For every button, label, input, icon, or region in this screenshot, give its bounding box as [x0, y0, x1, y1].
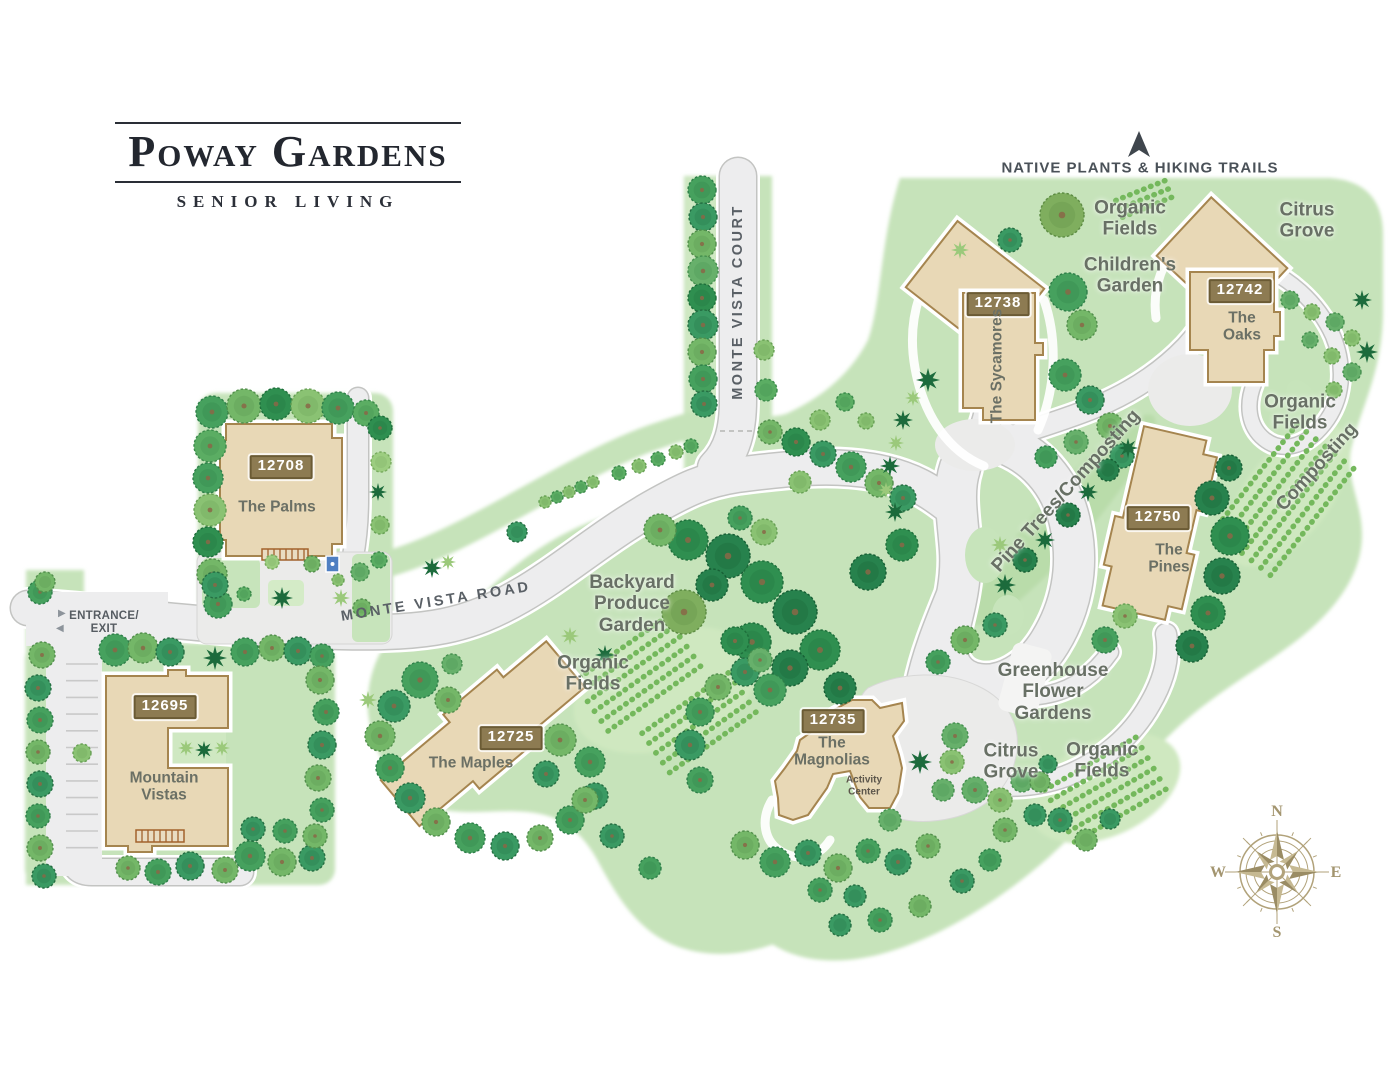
tree-icon — [979, 849, 1001, 871]
tree-icon — [639, 857, 661, 879]
tree-icon — [773, 590, 817, 634]
tree-icon — [194, 430, 226, 462]
area-label-childrens-garden: Children's Garden — [1070, 255, 1190, 298]
tree-icon — [687, 767, 713, 793]
tree-icon — [26, 804, 50, 828]
tree-icon — [156, 638, 184, 666]
tree-icon — [212, 857, 238, 883]
entrance-exit-label: ENTRANCE/ EXIT — [57, 610, 152, 636]
tree-icon — [1281, 291, 1299, 309]
tree-icon — [741, 561, 783, 603]
name-magnolias: The Magnolias — [782, 735, 882, 770]
tree-icon — [35, 572, 55, 592]
area-label-greenhouse-flower-gardens: Greenhouse Flower Gardens — [990, 660, 1116, 724]
badge-magnolias: 12735 — [802, 709, 865, 733]
tree-icon — [1075, 829, 1097, 851]
name-mountain-vistas: Mountain Vistas — [119, 770, 209, 805]
palm-tree-icon — [888, 435, 904, 451]
name-palms: The Palms — [222, 498, 332, 515]
arrow-left-icon: ◀ — [56, 623, 64, 634]
tree-icon — [539, 496, 551, 508]
tree-icon — [563, 486, 575, 498]
palm-tree-icon — [994, 574, 1016, 596]
tree-icon — [99, 634, 131, 666]
tree-icon — [365, 721, 395, 751]
tree-icon — [196, 396, 228, 428]
tree-icon — [1064, 430, 1088, 454]
area-label-organic-fields-right: Organic Fields — [1255, 392, 1345, 435]
palm-tree-icon — [203, 646, 227, 670]
tree-icon — [73, 744, 91, 762]
tree-icon — [858, 413, 874, 429]
tree-icon — [688, 284, 716, 312]
tree-icon — [836, 393, 854, 411]
tree-icon — [1113, 604, 1137, 628]
tree-icon — [235, 841, 265, 871]
tree-icon — [1326, 313, 1344, 331]
tree-icon — [696, 569, 728, 601]
tree-icon — [600, 824, 624, 848]
tree-icon — [684, 439, 698, 453]
site-map: Poway Gardens SENIOR LIVING NATIVE PLANT… — [0, 0, 1400, 1082]
area-label-organic-fields-center: Organic Fields — [549, 653, 637, 696]
tree-icon — [455, 823, 485, 853]
palm-tree-icon — [369, 483, 387, 501]
tree-icon — [755, 379, 777, 401]
tree-icon — [299, 845, 325, 871]
tree-icon — [795, 840, 821, 866]
tree-icon — [1048, 808, 1072, 832]
tree-icon — [1211, 517, 1249, 555]
tree-icon — [748, 648, 772, 672]
tree-icon — [322, 392, 354, 424]
tree-icon — [1191, 596, 1225, 630]
compass-w-label: W — [1210, 864, 1226, 882]
palm-tree-icon — [359, 691, 377, 709]
tree-icon — [689, 365, 717, 393]
palm-tree-icon — [878, 482, 894, 498]
tree-icon — [533, 761, 559, 787]
tree-icon — [916, 834, 940, 858]
tree-icon — [886, 529, 918, 561]
bench-icon — [136, 830, 184, 842]
tree-icon — [688, 310, 718, 340]
tree-icon — [1343, 363, 1361, 381]
tree-icon — [260, 388, 292, 420]
tree-icon — [551, 491, 563, 503]
compass-e-label: E — [1331, 864, 1342, 882]
tree-icon — [265, 555, 279, 569]
tree-icon — [575, 481, 587, 493]
tree-icon — [422, 808, 450, 836]
tree-icon — [27, 835, 53, 861]
tree-icon — [371, 552, 387, 568]
tree-icon — [378, 690, 410, 722]
area-label-organic-fields-top: Organic Fields — [1085, 198, 1175, 241]
palm-tree-icon — [332, 589, 350, 607]
tree-icon — [868, 908, 892, 932]
palm-tree-icon — [422, 558, 442, 578]
tree-icon — [308, 731, 336, 759]
compass-s-label: S — [1273, 924, 1282, 942]
logo: Poway Gardens SENIOR LIVING — [85, 122, 491, 212]
north-arrow-icon — [1128, 131, 1150, 157]
tree-icon — [26, 740, 50, 764]
tree-icon — [1035, 446, 1057, 468]
palm-tree-icon — [271, 587, 293, 609]
tree-icon — [691, 391, 717, 417]
logo-rule-bottom — [115, 181, 461, 183]
tree-icon — [491, 832, 519, 860]
tree-icon — [402, 662, 438, 698]
palm-tree-icon — [214, 740, 230, 756]
tree-icon — [998, 228, 1022, 252]
label-activity-center: Activity Center — [832, 775, 896, 798]
tree-icon — [844, 885, 866, 907]
area-label-backyard-produce-garden: Backyard Produce Garden — [573, 572, 691, 636]
tree-icon — [988, 788, 1012, 812]
tree-icon — [368, 416, 392, 440]
badge-pines: 12750 — [1127, 506, 1190, 530]
area-label-organic-fields-bottom: Organic Fields — [1057, 740, 1147, 783]
tree-icon — [1067, 310, 1097, 340]
tree-icon — [612, 466, 626, 480]
tree-icon — [829, 914, 851, 936]
tree-icon — [675, 730, 705, 760]
tree-icon — [371, 516, 389, 534]
compass-rose — [1225, 820, 1329, 924]
tree-icon — [1092, 627, 1118, 653]
palm-tree-icon — [880, 456, 900, 476]
trail-label: NATIVE PLANTS & HIKING TRAILS — [1001, 161, 1278, 178]
tree-icon — [728, 506, 752, 530]
tree-icon — [810, 410, 830, 430]
tree-icon — [259, 635, 285, 661]
tree-icon — [754, 340, 774, 360]
logo-subtitle: SENIOR LIVING — [85, 192, 491, 212]
tree-icon — [1040, 193, 1084, 237]
name-sycamores: The Sycamores — [988, 309, 1005, 424]
tree-icon — [1304, 304, 1320, 320]
tree-icon — [435, 687, 461, 713]
tree-icon — [313, 699, 339, 725]
tree-icon — [940, 750, 964, 774]
tree-icon — [824, 854, 852, 882]
area-label-citrus-grove-bottom: Citrus Grove — [975, 741, 1047, 784]
tree-icon — [1195, 481, 1229, 515]
tree-icon — [310, 644, 334, 668]
tree-icon — [371, 452, 391, 472]
tree-icon — [993, 818, 1017, 842]
tree-icon — [951, 626, 979, 654]
tree-icon — [527, 825, 553, 851]
tree-icon — [227, 389, 261, 423]
badge-mountain-vistas: 12695 — [134, 695, 197, 719]
tree-icon — [376, 754, 404, 782]
road-label-monte-vista-court: MONTE VISTA COURT — [730, 204, 746, 400]
palm-tree-icon — [905, 390, 921, 406]
tree-icon — [202, 572, 228, 598]
tree-icon — [721, 627, 749, 655]
tree-icon — [303, 824, 327, 848]
tree-icon — [782, 428, 810, 456]
tree-icon — [909, 895, 931, 917]
tree-icon — [879, 809, 901, 831]
tree-icon — [669, 445, 683, 459]
tree-icon — [688, 230, 716, 258]
tree-icon — [689, 203, 717, 231]
badge-oaks: 12742 — [1209, 279, 1272, 303]
tree-icon — [273, 819, 297, 843]
tree-icon — [1216, 455, 1242, 481]
tree-icon — [25, 675, 51, 701]
palm-tree-icon — [893, 410, 913, 430]
tree-icon — [983, 613, 1007, 637]
tree-icon — [810, 441, 836, 467]
tree-icon — [237, 587, 251, 601]
tree-icon — [587, 476, 599, 488]
palm-tree-icon — [885, 502, 905, 522]
palm-tree-icon — [1352, 290, 1372, 310]
palm-tree-icon — [195, 741, 213, 759]
tree-icon — [544, 724, 576, 756]
compass-n-label: N — [1271, 803, 1283, 821]
tree-icon — [193, 463, 223, 493]
tree-icon — [632, 459, 646, 473]
tree-icon — [705, 674, 731, 700]
tree-icon — [32, 864, 56, 888]
tree-icon — [27, 707, 53, 733]
tree-icon — [686, 698, 714, 726]
tree-icon — [351, 563, 369, 581]
tree-icon — [760, 847, 790, 877]
tree-icon — [1024, 804, 1046, 826]
tree-icon — [1076, 386, 1104, 414]
tree-icon — [332, 574, 344, 586]
tree-icon — [116, 856, 140, 880]
tree-icon — [395, 783, 425, 813]
tree-icon — [284, 637, 312, 665]
tree-icon — [688, 176, 716, 204]
tree-icon — [575, 747, 605, 777]
tree-icon — [1100, 809, 1120, 829]
tree-icon — [291, 389, 325, 423]
tree-icon — [268, 848, 296, 876]
tree-icon — [1204, 558, 1240, 594]
building-the-palms — [220, 424, 342, 556]
tree-icon — [241, 817, 265, 841]
tree-icon — [836, 452, 866, 482]
tree-icon — [731, 831, 759, 859]
tree-icon — [1302, 332, 1318, 348]
tree-icon — [885, 849, 911, 875]
tree-icon — [1176, 630, 1208, 662]
tree-icon — [789, 471, 811, 493]
tree-icon — [688, 338, 716, 366]
tree-icon — [644, 514, 676, 546]
palm-tree-icon — [951, 241, 969, 259]
tree-icon — [850, 554, 886, 590]
badge-maples: 12725 — [480, 726, 543, 750]
palm-tree-icon — [1356, 341, 1378, 363]
tree-icon — [651, 452, 665, 466]
tree-icon — [304, 556, 320, 572]
tree-icon — [926, 650, 950, 674]
name-oaks: The Oaks — [1217, 310, 1267, 345]
tree-icon — [572, 787, 598, 813]
tree-icon — [29, 642, 55, 668]
arrow-right-icon: ▶ — [58, 608, 66, 619]
name-maples: The Maples — [429, 754, 513, 771]
tree-icon — [751, 519, 777, 545]
tree-icon — [856, 839, 880, 863]
tree-icon — [305, 765, 331, 791]
badge-palms: 12708 — [250, 455, 313, 479]
tree-icon — [442, 654, 462, 674]
tree-icon — [231, 638, 259, 666]
area-label-citrus-grove-top: Citrus Grove — [1271, 200, 1343, 243]
tree-icon — [1344, 330, 1360, 346]
tree-icon — [942, 723, 968, 749]
tree-icon — [193, 527, 223, 557]
tree-icon — [808, 878, 832, 902]
tree-icon — [145, 859, 171, 885]
tree-icon — [306, 666, 334, 694]
tree-icon — [1049, 359, 1081, 391]
tree-icon — [310, 798, 334, 822]
palm-tree-icon — [440, 554, 456, 570]
tree-icon — [507, 522, 527, 542]
palm-tree-icon — [908, 750, 932, 774]
tree-icon — [950, 869, 974, 893]
palm-tree-icon — [916, 368, 940, 392]
tree-icon — [824, 672, 856, 704]
tree-icon — [688, 256, 718, 286]
palm-tree-icon — [178, 740, 194, 756]
tree-icon — [176, 852, 204, 880]
tree-icon — [27, 771, 53, 797]
tree-icon — [754, 674, 786, 706]
sign-icon — [326, 556, 339, 572]
tree-icon — [932, 779, 954, 801]
tree-icon — [1324, 348, 1340, 364]
tree-icon — [128, 633, 158, 663]
logo-title: Poway Gardens — [85, 124, 491, 181]
tree-icon — [758, 420, 782, 444]
name-pines: The Pines — [1142, 542, 1196, 577]
